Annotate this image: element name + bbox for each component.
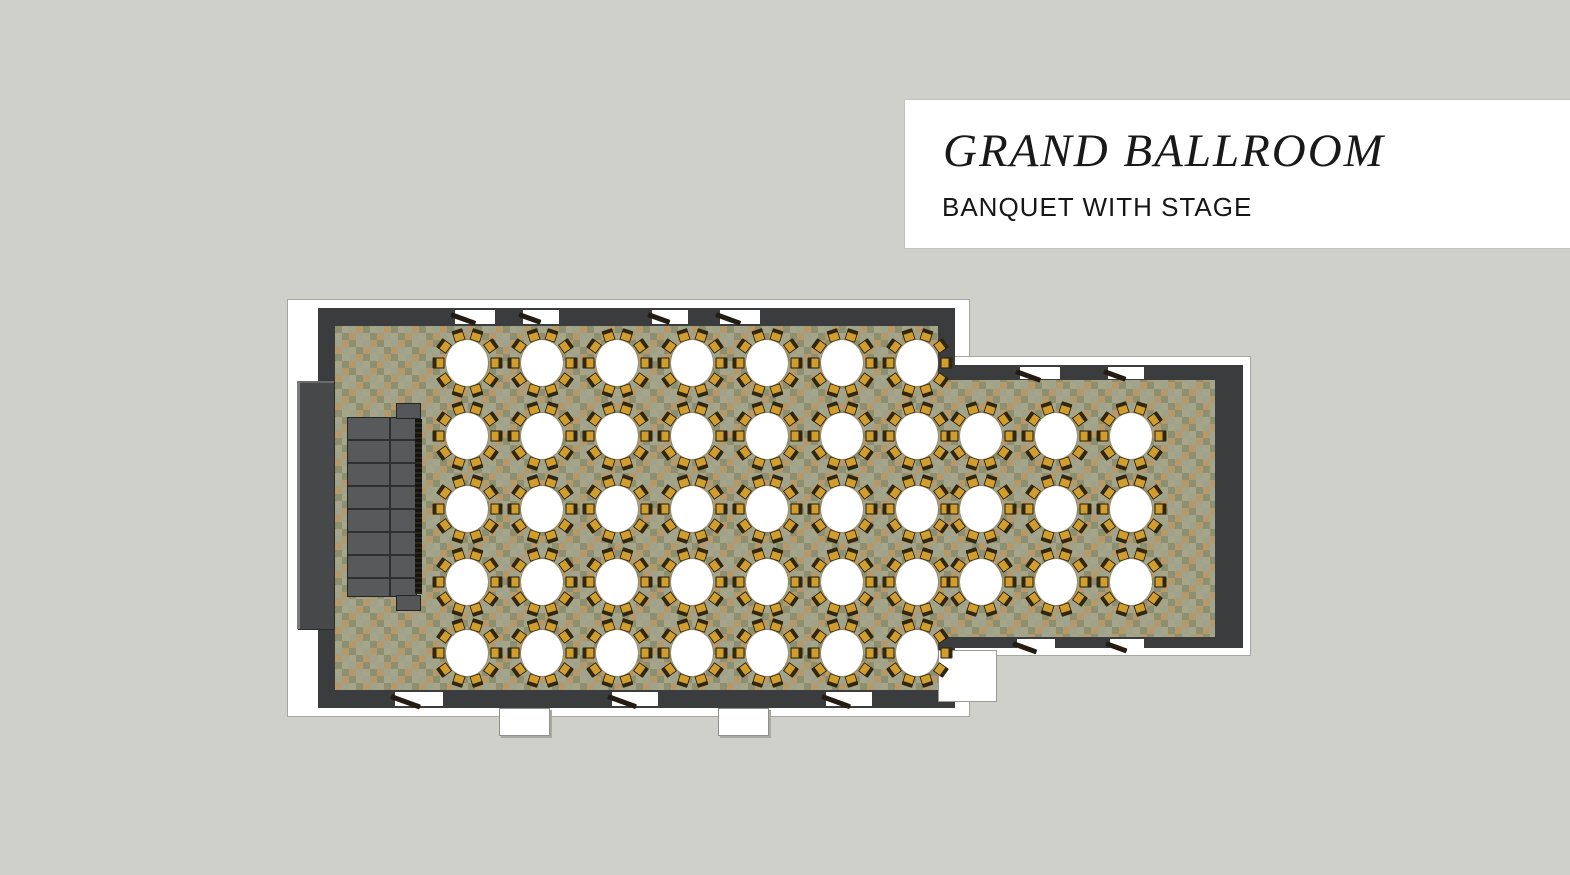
banquet-table	[588, 332, 646, 394]
chair	[507, 577, 519, 588]
chair	[1079, 577, 1091, 588]
chair	[865, 648, 877, 659]
chair	[946, 431, 958, 442]
stage-skirt-fringe	[415, 419, 422, 594]
chair	[490, 504, 502, 515]
banquet-table	[888, 622, 946, 684]
table-top	[446, 486, 488, 532]
table-top	[671, 486, 713, 532]
chair	[582, 431, 594, 442]
banquet-table	[813, 551, 871, 613]
banquet-table	[888, 551, 946, 613]
chair	[882, 648, 894, 659]
chair	[790, 358, 802, 369]
table-top	[521, 413, 563, 459]
chair	[1021, 431, 1033, 442]
chair	[657, 504, 669, 515]
table-top	[821, 559, 863, 605]
chair	[582, 577, 594, 588]
entry-step-left	[499, 708, 550, 736]
table-top	[960, 486, 1002, 532]
chair	[865, 504, 877, 515]
table-top	[896, 413, 938, 459]
table-top	[596, 340, 638, 386]
chair	[657, 431, 669, 442]
stage-step-top	[396, 403, 421, 419]
table-top	[746, 340, 788, 386]
chair	[807, 431, 819, 442]
banquet-table	[1102, 405, 1160, 467]
banquet-table	[663, 405, 721, 467]
chair	[732, 358, 744, 369]
table-top	[671, 413, 713, 459]
table-top	[1035, 413, 1077, 459]
chair	[715, 504, 727, 515]
banquet-table	[813, 622, 871, 684]
banquet-table	[952, 478, 1010, 540]
chair	[640, 577, 652, 588]
chair	[865, 358, 877, 369]
chair	[565, 358, 577, 369]
chair	[865, 577, 877, 588]
chair	[432, 577, 444, 588]
table-top	[896, 340, 938, 386]
banquet-table	[588, 478, 646, 540]
banquet-table	[738, 551, 796, 613]
chair	[940, 648, 952, 659]
table-top	[1110, 486, 1152, 532]
table-top	[596, 559, 638, 605]
table-top	[671, 630, 713, 676]
table-top	[960, 413, 1002, 459]
table-top	[521, 340, 563, 386]
chair	[1079, 504, 1091, 515]
table-top	[596, 413, 638, 459]
chair	[640, 431, 652, 442]
chair	[790, 577, 802, 588]
banquet-table	[438, 551, 496, 613]
chair	[807, 358, 819, 369]
chair	[1154, 431, 1166, 442]
title-card: GRAND BALLROOM BANQUET WITH STAGE	[905, 100, 1570, 248]
banquet-table	[588, 405, 646, 467]
table-top	[821, 486, 863, 532]
chair	[565, 648, 577, 659]
chair	[582, 358, 594, 369]
table-top	[521, 559, 563, 605]
banquet-table	[738, 478, 796, 540]
table-top	[746, 559, 788, 605]
table-top	[521, 486, 563, 532]
banquet-table	[588, 622, 646, 684]
banquet-table	[888, 478, 946, 540]
table-top	[821, 413, 863, 459]
banquet-table	[1027, 405, 1085, 467]
table-top	[1035, 559, 1077, 605]
banquet-table	[1102, 551, 1160, 613]
chair	[1004, 504, 1016, 515]
chair	[432, 504, 444, 515]
table-top	[446, 413, 488, 459]
chair	[1004, 431, 1016, 442]
banquet-table	[952, 551, 1010, 613]
chair	[1096, 577, 1108, 588]
banquet-table	[438, 478, 496, 540]
table-top	[1110, 559, 1152, 605]
chair	[715, 577, 727, 588]
chair	[1096, 504, 1108, 515]
chair	[1021, 577, 1033, 588]
chair	[640, 648, 652, 659]
table-top	[671, 559, 713, 605]
banquet-table	[663, 478, 721, 540]
chair	[865, 431, 877, 442]
chair	[1154, 577, 1166, 588]
chair	[946, 577, 958, 588]
chair	[432, 648, 444, 659]
chair	[657, 577, 669, 588]
chair	[507, 648, 519, 659]
chair	[1004, 577, 1016, 588]
chair	[946, 504, 958, 515]
chair	[432, 358, 444, 369]
chair	[565, 577, 577, 588]
chair	[807, 504, 819, 515]
table-top	[746, 486, 788, 532]
table-top	[896, 559, 938, 605]
chair	[882, 358, 894, 369]
chair	[565, 504, 577, 515]
chair	[807, 577, 819, 588]
chair	[732, 431, 744, 442]
chair	[1154, 504, 1166, 515]
banquet-table	[738, 405, 796, 467]
table-top	[446, 340, 488, 386]
banquet-table	[588, 551, 646, 613]
chair	[715, 358, 727, 369]
banquet-table	[663, 332, 721, 394]
chair	[640, 504, 652, 515]
chair	[1021, 504, 1033, 515]
banquet-table	[438, 622, 496, 684]
banquet-table	[813, 332, 871, 394]
table-top	[596, 630, 638, 676]
banquet-table	[513, 405, 571, 467]
banquet-table	[1027, 551, 1085, 613]
chair	[882, 577, 894, 588]
entry-step-right	[718, 708, 769, 736]
chair	[432, 431, 444, 442]
table-top	[1035, 486, 1077, 532]
chair	[790, 504, 802, 515]
banquet-table	[438, 405, 496, 467]
chair	[582, 504, 594, 515]
banquet-table	[1027, 478, 1085, 540]
chair	[507, 358, 519, 369]
page-background: { "background_color": "#cfd0ca", "title_…	[0, 0, 1570, 875]
chair	[790, 431, 802, 442]
banquet-table	[813, 478, 871, 540]
chair	[940, 358, 952, 369]
stage-platform	[347, 417, 417, 597]
table-top	[671, 340, 713, 386]
chair	[565, 431, 577, 442]
banquet-table	[738, 332, 796, 394]
chair	[882, 504, 894, 515]
banquet-table	[513, 332, 571, 394]
banquet-table	[888, 332, 946, 394]
chair	[1096, 431, 1108, 442]
page-title: GRAND BALLROOM	[943, 124, 1385, 178]
chair	[582, 648, 594, 659]
chair	[490, 577, 502, 588]
table-top	[746, 630, 788, 676]
table-top	[896, 630, 938, 676]
chair	[807, 648, 819, 659]
chair	[882, 431, 894, 442]
chair	[507, 504, 519, 515]
banquet-table	[663, 551, 721, 613]
table-top	[746, 413, 788, 459]
table-top	[446, 630, 488, 676]
chair	[1079, 431, 1091, 442]
table-top	[446, 559, 488, 605]
chair	[657, 358, 669, 369]
chair	[490, 648, 502, 659]
chair	[732, 504, 744, 515]
chair	[732, 577, 744, 588]
chair	[715, 648, 727, 659]
chair	[507, 431, 519, 442]
banquet-table	[738, 622, 796, 684]
chair	[732, 648, 744, 659]
table-top	[821, 340, 863, 386]
banquet-table	[513, 622, 571, 684]
banquet-table	[663, 622, 721, 684]
banquet-table	[952, 405, 1010, 467]
chair	[715, 431, 727, 442]
stage-back-curtain	[297, 381, 334, 629]
table-top	[596, 486, 638, 532]
table-top	[1110, 413, 1152, 459]
banquet-table	[813, 405, 871, 467]
table-top	[896, 486, 938, 532]
banquet-table	[438, 332, 496, 394]
chair	[657, 648, 669, 659]
page-subtitle: BANQUET WITH STAGE	[942, 192, 1252, 223]
banquet-table	[1102, 478, 1160, 540]
table-top	[521, 630, 563, 676]
table-top	[960, 559, 1002, 605]
chair	[640, 358, 652, 369]
chair	[490, 358, 502, 369]
table-top	[821, 630, 863, 676]
banquet-table	[513, 551, 571, 613]
chair	[790, 648, 802, 659]
banquet-table	[888, 405, 946, 467]
banquet-table	[513, 478, 571, 540]
chair	[490, 431, 502, 442]
stage-step-bottom	[396, 595, 421, 611]
